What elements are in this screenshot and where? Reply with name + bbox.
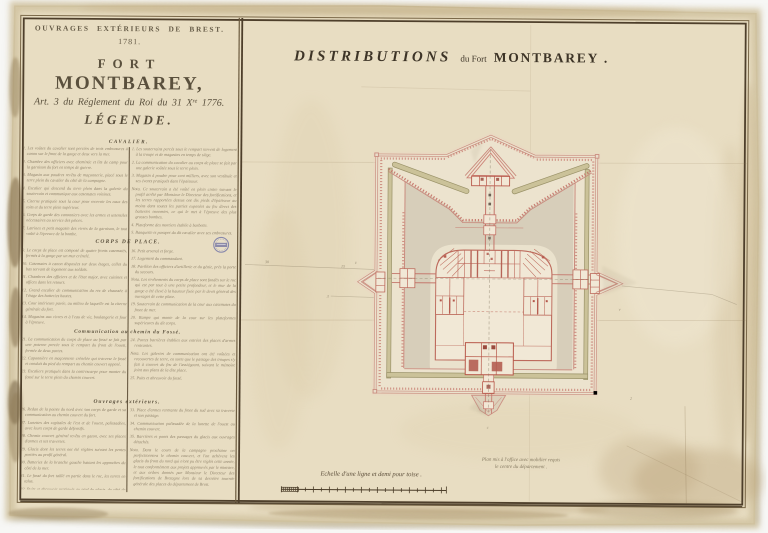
svg-text:v: v (619, 307, 621, 312)
svg-text:c: c (487, 425, 489, 430)
svg-text:2: 2 (630, 396, 632, 401)
svg-text:15: 15 (341, 264, 345, 269)
svg-text:30: 30 (265, 259, 269, 264)
svg-text:3: 3 (327, 294, 329, 299)
